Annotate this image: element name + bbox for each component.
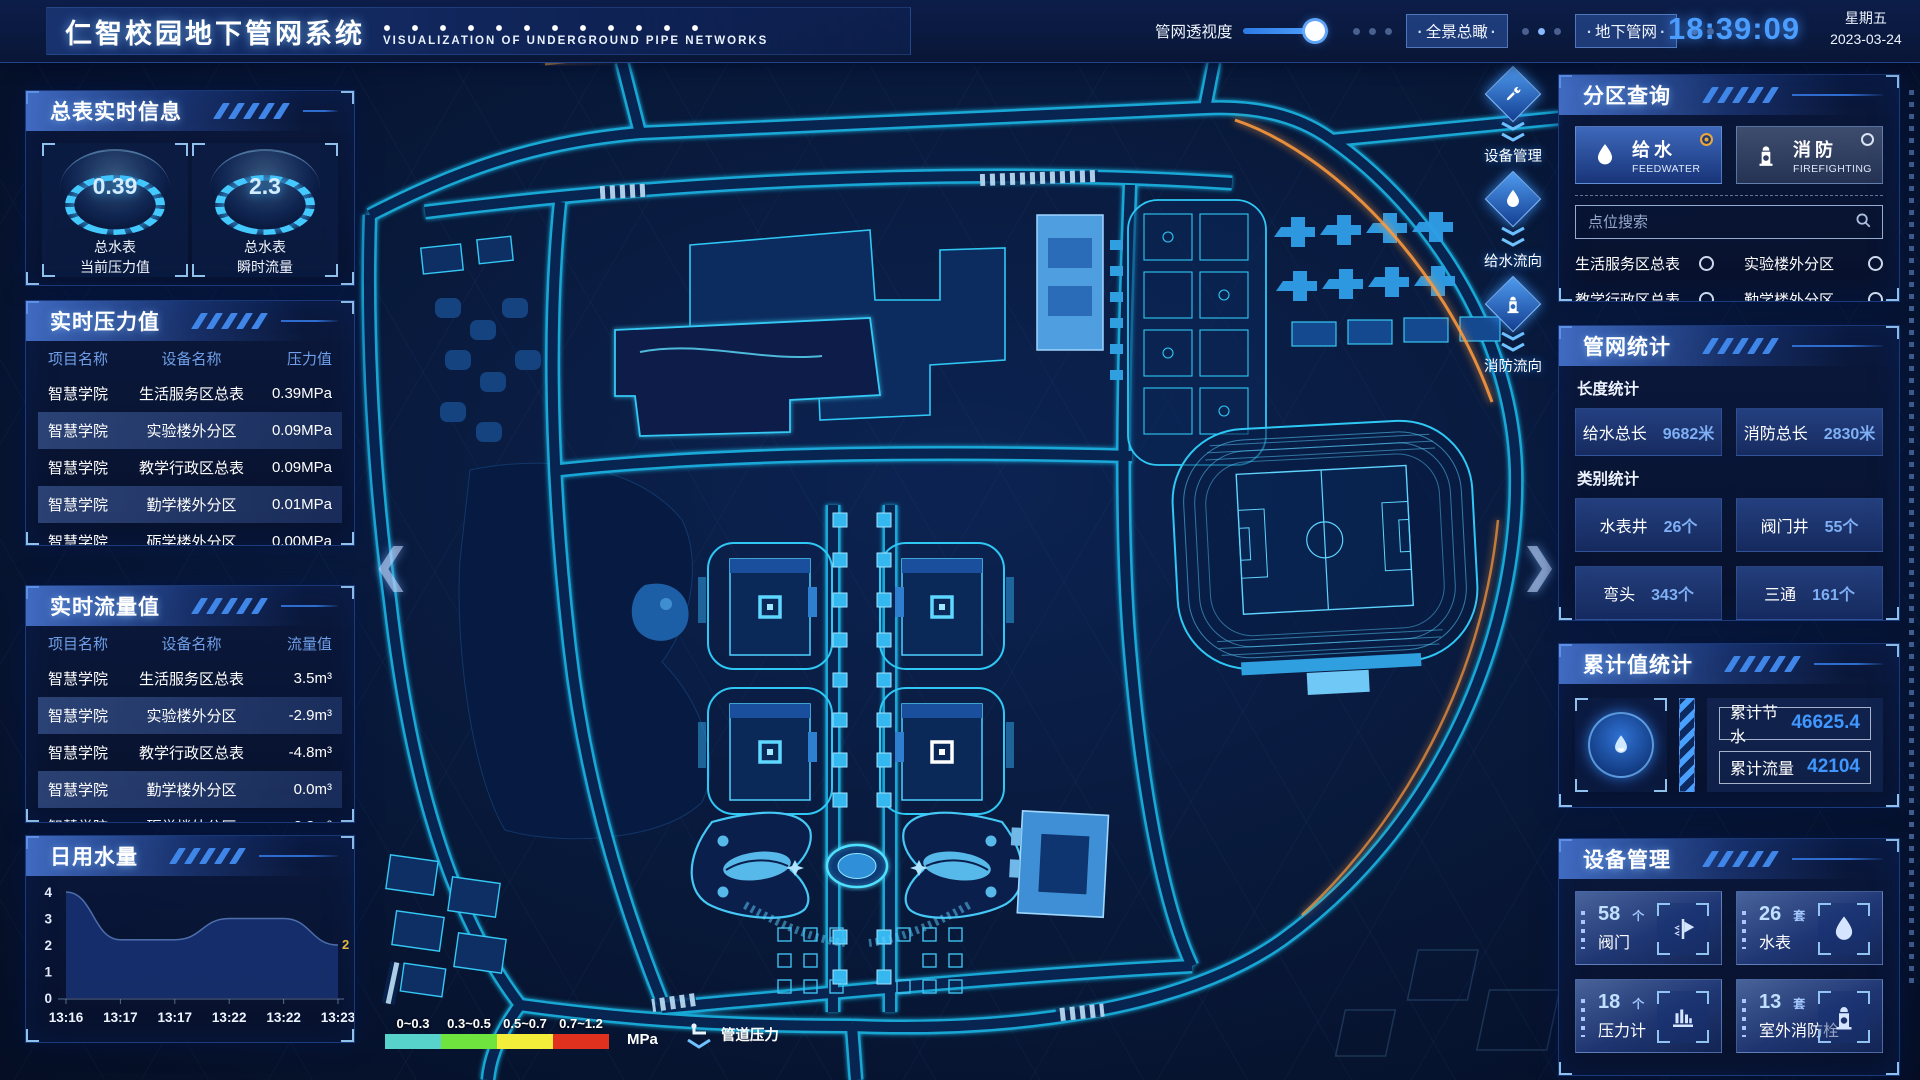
- stat-value: 2830米: [1824, 420, 1876, 444]
- valve-icon: [1657, 903, 1709, 955]
- panel-header: 管网统计: [1559, 326, 1899, 366]
- stripe-decoration: [1679, 698, 1695, 792]
- project-cell: 智慧学院: [38, 705, 126, 726]
- col-header: 流量值: [257, 633, 342, 654]
- device-cell: 勤学楼外分区: [126, 779, 257, 800]
- legend-segment: 0.5~0.7: [497, 1016, 553, 1049]
- gauge-value: 2.3: [204, 173, 326, 200]
- stat-label: 给水总长: [1583, 420, 1647, 444]
- app-subtitle: VISUALIZATION OF UNDERGROUND PIPE NETWOR…: [383, 35, 768, 47]
- stat-value: 55个: [1825, 513, 1859, 537]
- project-cell: 智慧学院: [38, 742, 126, 763]
- map-tool-rail: 设备管理 给水流向 消防流向: [1476, 68, 1550, 383]
- device-count: 26: [1759, 903, 1781, 925]
- legend-segment: 0.7~1.2: [553, 1016, 609, 1049]
- zone-list-item[interactable]: 教学行政区总表: [1575, 281, 1714, 302]
- svg-text:0: 0: [44, 991, 52, 1006]
- project-cell: 智慧学院: [38, 494, 126, 515]
- slash-decoration: [1729, 656, 1796, 672]
- scrollbar-marks[interactable]: [1909, 90, 1914, 990]
- stat-box: 弯头343个: [1575, 566, 1722, 620]
- time-display: 18:39:09: [1668, 11, 1800, 47]
- zone-item-label: 勤学楼外分区: [1744, 289, 1834, 303]
- dot-group: [1353, 28, 1392, 35]
- panel-title: 实时压力值: [50, 306, 160, 336]
- panel-header: 实时流量值: [26, 586, 354, 626]
- cumulative-label: 累计流量: [1730, 755, 1794, 779]
- svg-text:13:22: 13:22: [266, 1010, 301, 1025]
- panel-title: 累计值统计: [1583, 649, 1693, 679]
- device-count: 58: [1598, 903, 1620, 925]
- stat-box: 水表井26个: [1575, 498, 1722, 552]
- stat-box: 给水总长9682米: [1575, 408, 1722, 456]
- pipe-pressure-label: 管道压力: [721, 1024, 779, 1045]
- line-decoration: [281, 320, 338, 322]
- device-management-panel: 设备管理 58个 阀门 26套 水表 18个 压力计: [1558, 838, 1900, 1076]
- water-drop-icon: [1485, 171, 1542, 228]
- device-unit: 套: [1793, 909, 1805, 923]
- search-box[interactable]: [1575, 205, 1883, 239]
- device-card-pressure[interactable]: 18个 压力计: [1575, 979, 1722, 1053]
- slider-thumb[interactable]: [1305, 21, 1325, 41]
- zone-type-buttons: 给水 FEEDWATER 消防 FIREFIGHTING: [1559, 115, 1899, 193]
- radio-unselected-icon[interactable]: [1868, 256, 1883, 271]
- chevron-down-icon: [1500, 122, 1526, 142]
- cumulative-row: 累计节水 46625.4 累计流量 42104: [1559, 684, 1899, 792]
- flow-table-panel: 实时流量值 项目名称 设备名称 流量值 智慧学院生活服务区总表3.5m³ 智慧学…: [25, 585, 355, 823]
- panel-header: 累计值统计: [1559, 644, 1899, 684]
- value-cell: 0.09MPa: [257, 422, 342, 439]
- pressure-gauge-icon: [1657, 991, 1709, 1043]
- value-cell: 0.0m³: [257, 781, 342, 798]
- col-header: 项目名称: [38, 633, 126, 654]
- svg-text:4: 4: [44, 885, 52, 900]
- pressure-gauge-card: 0.39 总水表 当前压力值: [42, 143, 188, 277]
- line-decoration: [1792, 94, 1883, 96]
- app-title-box: 仁智校园地下管网系统 VISUALIZATION OF UNDERGROUND …: [46, 7, 911, 55]
- zone-query-panel: 分区查询 给水 FEEDWATER 消防 FIREFIGHTING: [1558, 74, 1900, 302]
- device-unit: 个: [1632, 997, 1644, 1011]
- clock: 18:39:09 星期五 2023-03-24: [1668, 8, 1902, 50]
- col-header: 压力值: [257, 348, 342, 369]
- panel-header: 总表实时信息: [26, 91, 354, 131]
- dots-decoration: [383, 24, 719, 32]
- device-cell: 教学行政区总表: [126, 742, 257, 763]
- project-cell: 智慧学院: [38, 531, 126, 546]
- weekday: 星期五: [1845, 10, 1887, 26]
- dashed-divider: [1575, 195, 1883, 196]
- table-row: 智慧学院生活服务区总表3.5m³: [38, 660, 342, 697]
- table-row: 智慧学院砺学楼外分区0.00MPa: [38, 523, 342, 546]
- stat-value: 343个: [1651, 581, 1694, 605]
- device-count: 13: [1759, 991, 1781, 1013]
- zone-list-item[interactable]: 勤学楼外分区: [1744, 281, 1883, 302]
- value-cell: -2.3m³: [257, 818, 342, 823]
- date-display: 星期五 2023-03-24: [1830, 8, 1902, 50]
- radio-unselected-icon[interactable]: [1861, 133, 1874, 146]
- legend-range: 0.7~1.2: [553, 1016, 609, 1031]
- daily-usage-chart: 0123413:1613:1713:1713:2213:2213:232: [26, 876, 355, 1038]
- device-card-valve[interactable]: 58个 阀门: [1575, 891, 1722, 965]
- gauge-value: 0.39: [54, 173, 176, 200]
- pressure-table-panel: 实时压力值 项目名称 设备名称 压力值 智慧学院生活服务区总表0.39MPa 智…: [25, 300, 355, 546]
- slash-decoration: [1707, 851, 1774, 867]
- date: 2023-03-24: [1830, 31, 1902, 47]
- zone-list-item[interactable]: 生活服务区总表: [1575, 245, 1714, 281]
- header-controls: 管网透视度 全景总瞰 地下管网: [1155, 0, 1724, 62]
- carousel-left-arrow[interactable]: ❮: [372, 538, 411, 592]
- value-cell: -2.9m³: [257, 707, 342, 724]
- stat-label: 弯头: [1603, 581, 1635, 605]
- stat-label: 三通: [1764, 581, 1796, 605]
- value-cell: -4.8m³: [257, 744, 342, 761]
- panel-title: 分区查询: [1583, 80, 1671, 110]
- legend-segment: 0~0.3: [385, 1016, 441, 1049]
- svg-text:2: 2: [342, 937, 349, 952]
- table-row: 智慧学院勤学楼外分区0.0m³: [38, 771, 342, 808]
- panel-header: 日用水量: [26, 836, 354, 876]
- col-header: 项目名称: [38, 348, 126, 369]
- underground-button[interactable]: 地下管网: [1575, 14, 1677, 48]
- app-subtitle-wrap: VISUALIZATION OF UNDERGROUND PIPE NETWOR…: [383, 24, 768, 47]
- water-drop-icon: [1588, 712, 1654, 778]
- device-unit: 个: [1632, 909, 1644, 923]
- panorama-button[interactable]: 全景总瞰: [1406, 14, 1508, 48]
- stat-box: 三通161个: [1736, 566, 1883, 620]
- gauge-row: 0.39 总水表 当前压力值 2.3 总水表 瞬时流量: [26, 131, 354, 277]
- zone-item-label: 生活服务区总表: [1575, 253, 1680, 274]
- panel-title: 实时流量值: [50, 591, 160, 621]
- panel-title: 设备管理: [1583, 844, 1671, 874]
- device-label: 水表: [1759, 929, 1805, 953]
- project-cell: 智慧学院: [38, 668, 126, 689]
- slash-decoration: [196, 313, 263, 329]
- value-cell: 3.5m³: [257, 670, 342, 687]
- gauge-visual: 0.39: [54, 149, 176, 233]
- stat-box: 消防总长2830米: [1736, 408, 1883, 456]
- device-cell: 砺学楼外分区: [126, 531, 257, 546]
- search-input[interactable]: [1586, 213, 1850, 232]
- device-cell: 实验楼外分区: [126, 420, 257, 441]
- svg-text:3: 3: [44, 912, 52, 927]
- carousel-right-arrow[interactable]: ❯: [1520, 538, 1559, 592]
- chevron-down-icon: [1500, 227, 1526, 247]
- value-cell: 0.01MPa: [257, 496, 342, 513]
- water-drop-icon: [1590, 140, 1620, 170]
- fire-flow-map-button[interactable]: 消防流向: [1484, 278, 1542, 376]
- stat-label: 阀门井: [1761, 513, 1809, 537]
- zone-item-label: 教学行政区总表: [1575, 289, 1680, 303]
- slash-decoration: [196, 598, 263, 614]
- line-decoration: [1792, 858, 1883, 860]
- device-unit: 套: [1793, 997, 1805, 1011]
- zone-list: 生活服务区总表 实验楼外分区 教学行政区总表 勤学楼外分区 砺学楼外分区 宿舍区…: [1559, 245, 1899, 302]
- length-stats-grid: 给水总长9682米 消防总长2830米: [1559, 408, 1899, 456]
- stat-value: 9682米: [1663, 420, 1715, 444]
- table-header-row: 项目名称 设备名称 压力值: [38, 341, 342, 375]
- courtyard-buildings: [698, 543, 1014, 814]
- stat-value: 26个: [1664, 513, 1698, 537]
- gauge-visual: 2.3: [204, 149, 326, 233]
- device-card-hydrant[interactable]: 13套 室外消防栓: [1736, 979, 1883, 1053]
- pressure-meter-icon: [686, 1023, 712, 1049]
- cumulative-value: 42104: [1807, 756, 1860, 778]
- stat-label: 消防总长: [1744, 420, 1808, 444]
- radio-unselected-icon[interactable]: [1699, 256, 1714, 271]
- cumulative-value: 46625.4: [1791, 712, 1860, 734]
- zone-item-label: 实验楼外分区: [1744, 253, 1834, 274]
- svg-text:1: 1: [44, 965, 52, 980]
- slash-decoration: [1707, 338, 1774, 354]
- slash-decoration: [174, 848, 241, 864]
- table-row: 智慧学院生活服务区总表0.39MPa: [38, 375, 342, 412]
- radio-unselected-icon[interactable]: [1699, 292, 1714, 303]
- project-cell: 智慧学院: [38, 420, 126, 441]
- legend-unit: MPa: [627, 1031, 658, 1048]
- transparency-slider[interactable]: [1243, 28, 1329, 34]
- svg-text:13:17: 13:17: [103, 1010, 138, 1025]
- dot: [1538, 28, 1545, 35]
- device-card-meter[interactable]: 26套 水表: [1736, 891, 1883, 965]
- line-decoration: [281, 605, 338, 607]
- plaza: [692, 813, 1023, 943]
- zone-button-sublabel: FIREFIGHTING: [1793, 163, 1872, 175]
- pipe-pressure-legend: 0~0.3 0.3~0.5 0.5~0.7 0.7~1.2 MPa 管道压力: [385, 1016, 779, 1049]
- device-label: 阀门: [1598, 929, 1644, 953]
- dot: [1353, 28, 1360, 35]
- category-stats-grid: 水表井26个 阀门井55个 弯头343个 三通161个: [1559, 498, 1899, 621]
- zone-button-label: 给水: [1632, 136, 1700, 162]
- rail-label: 设备管理: [1484, 145, 1542, 166]
- water-icon-card: [1575, 698, 1667, 792]
- feedwater-button[interactable]: 给水 FEEDWATER: [1575, 126, 1722, 184]
- flow-gauge-card: 2.3 总水表 瞬时流量: [192, 143, 338, 277]
- stadium: [1169, 417, 1483, 701]
- tools-icon: [1485, 66, 1542, 123]
- caption-line: 当前压力值: [80, 259, 150, 275]
- device-cell: 实验楼外分区: [126, 705, 257, 726]
- line-decoration: [1792, 345, 1883, 347]
- device-cell: 生活服务区总表: [126, 668, 257, 689]
- caption-line: 总水表: [244, 239, 286, 255]
- panel-title: 管网统计: [1583, 331, 1671, 361]
- stat-box: 阀门井55个: [1736, 498, 1883, 552]
- table-row: 智慧学院勤学楼外分区0.01MPa: [38, 486, 342, 523]
- cumulative-values: 累计节水 46625.4 累计流量 42104: [1707, 698, 1883, 792]
- pressure-table: 项目名称 设备名称 压力值 智慧学院生活服务区总表0.39MPa 智慧学院实验楼…: [26, 341, 354, 546]
- svg-text:13:22: 13:22: [212, 1010, 247, 1025]
- panel-title: 日用水量: [50, 841, 138, 871]
- table-header-row: 项目名称 设备名称 流量值: [38, 626, 342, 660]
- line-decoration: [259, 855, 338, 857]
- project-cell: 智慧学院: [38, 816, 126, 823]
- table-row: 智慧学院实验楼外分区0.09MPa: [38, 412, 342, 449]
- value-cell: 0.00MPa: [257, 533, 342, 546]
- table-row: 智慧学院实验楼外分区-2.9m³: [38, 697, 342, 734]
- caption-line: 总水表: [94, 239, 136, 255]
- legend-segment: 0.3~0.5: [441, 1016, 497, 1049]
- stat-label: 水表井: [1600, 513, 1648, 537]
- slash-decoration: [218, 103, 285, 119]
- cumulative-line: 累计节水 46625.4: [1719, 707, 1871, 740]
- slash-decoration: [1707, 87, 1774, 103]
- table-row: 智慧学院教学行政区总表0.09MPa: [38, 449, 342, 486]
- dot-group: [1522, 28, 1561, 35]
- value-cell: 0.09MPa: [257, 459, 342, 476]
- table-row: 智慧学院教学行政区总表-4.8m³: [38, 734, 342, 771]
- gauge-caption: 总水表 瞬时流量: [192, 237, 338, 278]
- radio-selected-icon[interactable]: [1700, 133, 1713, 146]
- device-cell: 勤学楼外分区: [126, 494, 257, 515]
- app-title: 仁智校园地下管网系统: [65, 12, 365, 51]
- dot: [1385, 28, 1392, 35]
- master-meter-panel: 总表实时信息 0.39 总水表 当前压力值 2.3 总水表 瞬时流量: [25, 90, 355, 286]
- length-stats-label: 长度统计: [1577, 377, 1881, 399]
- dot: [1522, 28, 1529, 35]
- firefighting-button[interactable]: 消防 FIREFIGHTING: [1736, 126, 1883, 184]
- legend-color-bar: [497, 1034, 553, 1049]
- col-header: 设备名称: [126, 633, 257, 654]
- search-icon[interactable]: [1854, 211, 1872, 234]
- panel-title: 总表实时信息: [50, 96, 182, 126]
- chevron-down-icon: [1500, 332, 1526, 352]
- cumulative-stats-panel: 累计值统计 累计节水 46625.4 累计流量 42104: [1558, 643, 1900, 808]
- dot: [1369, 28, 1376, 35]
- project-cell: 智慧学院: [38, 779, 126, 800]
- panel-header: 分区查询: [1559, 75, 1899, 115]
- dot: [1554, 28, 1561, 35]
- cumulative-line: 累计流量 42104: [1719, 751, 1871, 784]
- hydrant-icon: [1751, 140, 1781, 170]
- device-grid: 58个 阀门 26套 水表 18个 压力计: [1559, 879, 1899, 1065]
- transparency-label: 管网透视度: [1155, 20, 1233, 42]
- hydrant-icon: [1485, 276, 1542, 333]
- network-stats-panel: 管网统计 长度统计 给水总长9682米 消防总长2830米 类别统计 水表井26…: [1558, 325, 1900, 621]
- daily-usage-panel: 日用水量 0123413:1613:1713:1713:2213:2213:23…: [25, 835, 355, 1043]
- zone-button-sublabel: FEEDWATER: [1632, 163, 1700, 175]
- stat-value: 161个: [1812, 581, 1855, 605]
- svg-text:13:17: 13:17: [158, 1010, 193, 1025]
- legend-color-bar: [441, 1034, 497, 1049]
- device-label: 压力计: [1598, 1017, 1646, 1041]
- device-cell: 生活服务区总表: [126, 383, 257, 404]
- legend-range: 0.5~0.7: [497, 1016, 553, 1031]
- cumulative-label: 累计节水: [1730, 699, 1791, 747]
- radio-unselected-icon[interactable]: [1868, 292, 1883, 303]
- panel-header: 设备管理: [1559, 839, 1899, 879]
- device-cell: 教学行政区总表: [126, 457, 257, 478]
- project-cell: 智慧学院: [38, 457, 126, 478]
- line-decoration: [1814, 663, 1883, 665]
- svg-text:13:16: 13:16: [49, 1010, 84, 1025]
- legend-range: 0.3~0.5: [441, 1016, 497, 1031]
- legend-color-bar: [385, 1034, 441, 1049]
- hydrant-icon: [1818, 991, 1870, 1043]
- legend-color-bar: [553, 1034, 609, 1049]
- category-stats-label: 类别统计: [1577, 467, 1881, 489]
- feedwater-flow-map-button[interactable]: 给水流向: [1484, 173, 1542, 271]
- gauge-caption: 总水表 当前压力值: [42, 237, 188, 278]
- value-cell: 0.39MPa: [257, 385, 342, 402]
- svg-text:2: 2: [44, 938, 52, 953]
- col-header: 设备名称: [126, 348, 257, 369]
- project-cell: 智慧学院: [38, 383, 126, 404]
- device-count: 18: [1598, 991, 1620, 1013]
- auditorium: [1007, 810, 1108, 917]
- pipe-pressure-flag[interactable]: 管道压力: [686, 1023, 779, 1049]
- rail-label: 给水流向: [1484, 250, 1542, 271]
- flow-table: 项目名称 设备名称 流量值 智慧学院生活服务区总表3.5m³ 智慧学院实验楼外分…: [26, 626, 354, 823]
- device-management-map-button[interactable]: 设备管理: [1484, 68, 1542, 166]
- rail-label: 消防流向: [1484, 355, 1542, 376]
- legend-range: 0~0.3: [385, 1016, 441, 1031]
- svg-text:13:23: 13:23: [321, 1010, 355, 1025]
- line-decoration: [303, 110, 338, 112]
- caption-line: 瞬时流量: [237, 259, 293, 275]
- top-bar: 仁智校园地下管网系统 VISUALIZATION OF UNDERGROUND …: [0, 0, 1920, 63]
- table-row: 智慧学院砺学楼外分区-2.3m³: [38, 808, 342, 823]
- device-cell: 砺学楼外分区: [126, 816, 257, 823]
- panel-header: 实时压力值: [26, 301, 354, 341]
- water-drop-icon: [1818, 903, 1870, 955]
- zone-list-item[interactable]: 实验楼外分区: [1744, 245, 1883, 281]
